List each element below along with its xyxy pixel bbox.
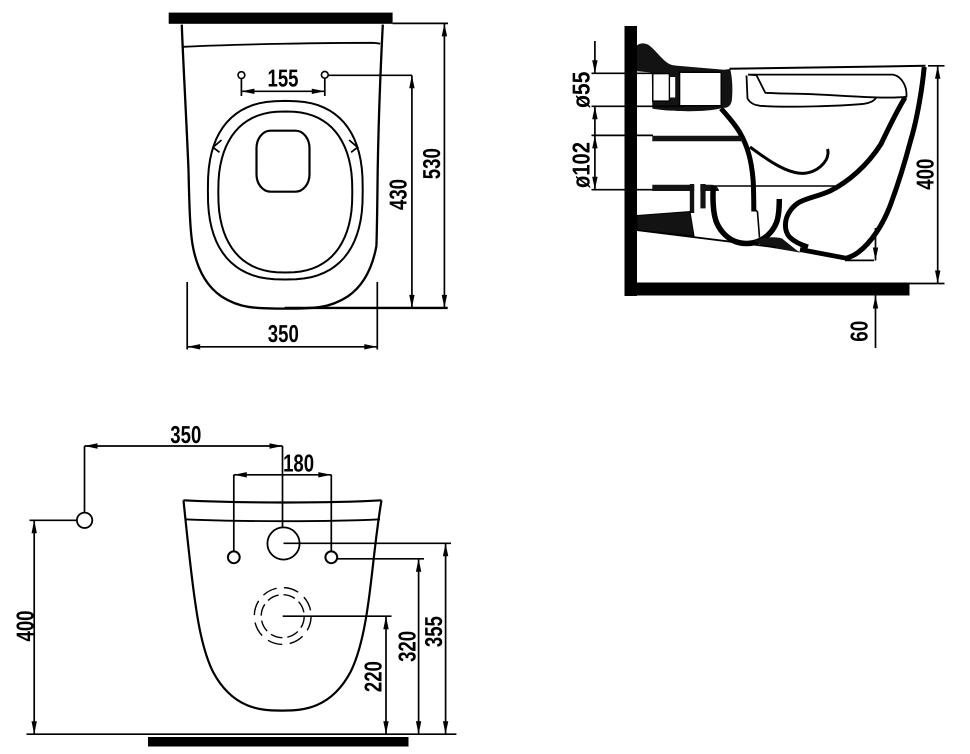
- svg-text:350: 350: [268, 321, 299, 348]
- svg-text:400: 400: [13, 611, 40, 642]
- svg-text:155: 155: [268, 66, 299, 93]
- svg-text:ø55: ø55: [569, 72, 596, 109]
- svg-text:220: 220: [361, 661, 388, 692]
- svg-text:430: 430: [385, 179, 412, 210]
- svg-text:320: 320: [395, 631, 422, 662]
- svg-text:530: 530: [419, 148, 446, 179]
- svg-text:400: 400: [913, 159, 940, 190]
- svg-text:60: 60: [847, 321, 874, 342]
- svg-text:355: 355: [421, 616, 448, 647]
- svg-text:ø102: ø102: [569, 142, 596, 188]
- svg-text:180: 180: [283, 451, 314, 478]
- svg-text:350: 350: [170, 422, 201, 449]
